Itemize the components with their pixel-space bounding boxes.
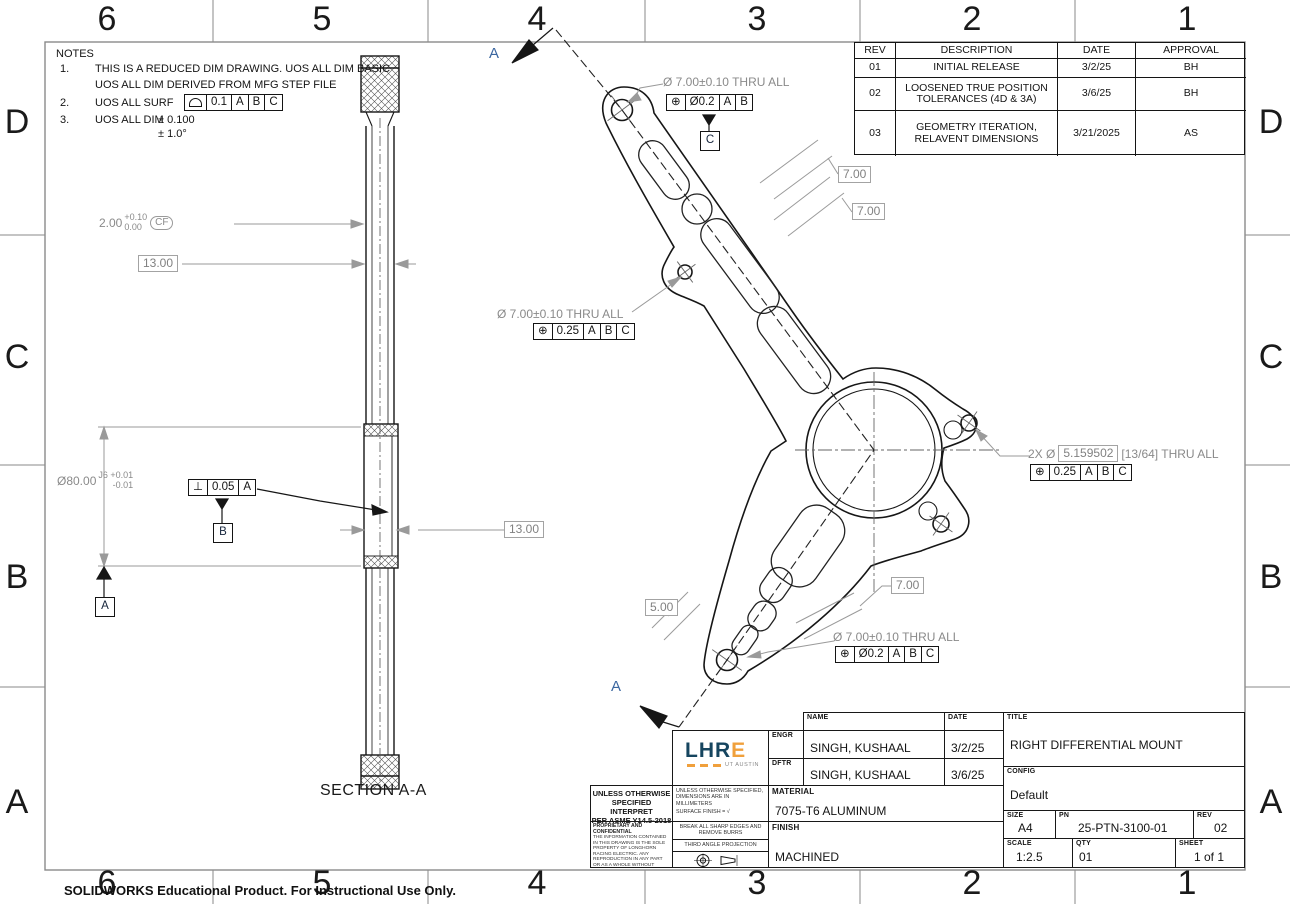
- surface-finish-icon: √: [727, 809, 730, 815]
- datum-flag-c: C: [700, 131, 720, 151]
- callout-right-ears-text: 2X Ø 5.159502 [13/64] THRU ALL: [1028, 445, 1219, 462]
- tb-finish-cell: FINISH MACHINED: [768, 821, 1004, 868]
- callout-bottom-hole-fcf: ⊕ Ø0.2 A B C: [835, 646, 939, 663]
- rev-row-3-rev: 03: [855, 111, 896, 156]
- tb-dftr-date: 3/6/25: [944, 758, 1004, 786]
- tb-config-cell: CONFIG Default: [1003, 766, 1245, 811]
- tb-rev-cell: REV 02: [1193, 810, 1245, 839]
- rev-row-2-rev: 02: [855, 78, 896, 111]
- section-view-drawing: [361, 56, 399, 794]
- logo-dashes: [687, 764, 721, 767]
- position-icon: ⊕: [534, 324, 553, 339]
- zone-left-b: B: [2, 558, 32, 596]
- rev-row-1-rev: 01: [855, 59, 896, 78]
- third-angle-projection-icon: [691, 853, 751, 868]
- zone-top-1: 1: [1165, 0, 1209, 38]
- callout-top-hole-text: Ø 7.00±0.10 THRU ALL: [663, 75, 789, 89]
- callout-top-hole-fcf: ⊕ Ø0.2 A B: [666, 94, 753, 111]
- zone-right-c: C: [1256, 338, 1286, 376]
- position-icon: ⊕: [836, 647, 855, 662]
- callout-right-ears-fcf: ⊕ 0.25 A B C: [1030, 464, 1132, 481]
- zone-top-6: 6: [85, 0, 129, 38]
- rev-row-1-description: INITIAL RELEASE: [896, 59, 1058, 78]
- dim-width-top: 13.00: [138, 255, 178, 272]
- tb-dftr-label: DFTR: [768, 758, 804, 786]
- callout-bottom-hole-text: Ø 7.00±0.10 THRU ALL: [833, 630, 959, 644]
- note-1-line-2: UOS ALL DIM DERIVED FROM MFG STEP FILE: [95, 79, 336, 91]
- tb-sheet-cell: SHEET 1 of 1: [1175, 838, 1245, 868]
- dim-depth: 2.00 +0.10 0.00 CF: [99, 213, 173, 232]
- zone-top-3: 3: [735, 0, 779, 38]
- tb-scale-cell: SCALE 1:2.5: [1003, 838, 1073, 868]
- zone-top-4: 4: [515, 0, 559, 38]
- rev-row-3-date: 3/21/2025: [1058, 111, 1136, 156]
- rev-header-description: DESCRIPTION: [896, 43, 1058, 59]
- continuous-feature-flag: CF: [150, 216, 173, 230]
- cut-label-top: A: [489, 45, 499, 62]
- zone-left-c: C: [2, 338, 32, 376]
- tb-engr-name: SINGH, KUSHAAL: [803, 730, 945, 759]
- note-2-fcf: 0.1 A B C: [184, 94, 283, 111]
- zone-bottom-2: 2: [950, 864, 994, 902]
- rev-row-3-description: GEOMETRY ITERATION, RELAVENT DIMENSIONS: [896, 111, 1058, 156]
- rev-header-date: DATE: [1058, 43, 1136, 59]
- tb-interpret-cell: UNLESS OTHERWISE SPECIFIED INTERPRET PER…: [590, 785, 673, 822]
- tb-title-cell: TITLE RIGHT DIFFERENTIAL MOUNT: [1003, 712, 1245, 767]
- tb-projection-symbol-cell: [672, 851, 769, 868]
- note-3-num: 3.: [60, 114, 69, 126]
- dim-wall-2: 7.00: [852, 203, 885, 220]
- position-icon: ⊕: [1031, 465, 1050, 480]
- dim-bore-value: Ø80.00: [57, 474, 96, 488]
- perpendicularity-icon: ⊥: [189, 480, 208, 495]
- rev-row-2-date: 3/6/25: [1058, 78, 1136, 111]
- datum-flag-a: A: [95, 597, 115, 617]
- logo-subtext: UT AUSTIN: [725, 762, 759, 768]
- tb-material-cell: MATERIAL 7075-T6 ALUMINUM: [768, 785, 1004, 822]
- tb-logo-cell: LHRE UT AUSTIN: [672, 730, 769, 786]
- dim-wall-1: 7.00: [838, 166, 871, 183]
- dim-width-mid: 13.00: [504, 521, 544, 538]
- tb-uos-dims-cell: UNLESS OTHERWISE SPECIFIED, DIMENSIONS A…: [672, 785, 769, 822]
- tb-pn-cell: PN 25-PTN-3100-01: [1055, 810, 1194, 839]
- position-icon: ⊕: [667, 95, 686, 110]
- zone-left-d: D: [2, 103, 32, 141]
- rev-row-2-approval: BH: [1136, 78, 1246, 111]
- main-dim-lines: [628, 84, 1030, 658]
- dim-bore-fit: J6 +0.01 -0.01: [98, 471, 133, 490]
- part-outline: [603, 87, 977, 684]
- section-view-label: SECTION A-A: [320, 782, 427, 800]
- solidworks-watermark: SOLIDWORKS Educational Product. For Inst…: [64, 883, 456, 898]
- note-2-text: UOS ALL SURF: [95, 97, 173, 109]
- zone-top-5: 5: [300, 0, 344, 38]
- datum-leaders: [97, 115, 715, 597]
- dim-wall-4: 5.00: [645, 599, 678, 616]
- rev-header-approval: APPROVAL: [1136, 43, 1246, 59]
- tb-proprietary-cell: PROPRIETARY AND CONFIDENTIAL THE INFORMA…: [590, 821, 673, 868]
- rev-row-1-approval: BH: [1136, 59, 1246, 78]
- tb-engr-label: ENGR: [768, 730, 804, 759]
- note-3-tol-1: ± 0.100: [158, 114, 195, 126]
- company-logo: LHRE: [685, 739, 746, 763]
- note-2-num: 2.: [60, 97, 69, 109]
- rev-header-rev: REV: [855, 43, 896, 59]
- dim-wall-3: 7.00: [891, 577, 924, 594]
- tb-break-edges-cell: BREAK ALL SHARP EDGES AND REMOVE BURRS: [672, 821, 769, 840]
- zone-bottom-4: 4: [515, 864, 559, 902]
- surface-profile-icon: [185, 95, 207, 110]
- note-1-line-1: THIS IS A REDUCED DIM DRAWING. UOS ALL D…: [95, 63, 390, 75]
- tb-qty-cell: QTY 01: [1072, 838, 1176, 868]
- rev-row-2-description: LOOSENED TRUE POSITION TOLERANCES (4D & …: [896, 78, 1058, 111]
- datum-flag-b: B: [213, 523, 233, 543]
- tb-date-header: DATE: [944, 712, 1004, 731]
- tb-engr-date: 3/2/25: [944, 730, 1004, 759]
- revision-table: REV DESCRIPTION DATE APPROVAL 01 INITIAL…: [854, 42, 1245, 155]
- dim-depth-value: 2.00: [99, 216, 122, 230]
- zone-left-a: A: [2, 783, 32, 821]
- cut-label-bottom: A: [611, 678, 621, 695]
- tb-dftr-name: SINGH, KUSHAAL: [803, 758, 945, 786]
- rev-row-1-date: 3/2/25: [1058, 59, 1136, 78]
- zone-right-a: A: [1256, 783, 1286, 821]
- note-3-tol-2: ± 1.0°: [158, 128, 187, 140]
- section-cut-arrows: [512, 28, 679, 728]
- callout-left-ear-text: Ø 7.00±0.10 THRU ALL: [497, 307, 623, 321]
- rev-row-3-approval: AS: [1136, 111, 1246, 156]
- notes-title: NOTES: [56, 48, 94, 60]
- drawing-sheet: 6 5 4 3 2 1 6 5 4 3 2 1 D C B A D C B A …: [0, 0, 1290, 904]
- dim-bore: Ø80.00 J6 +0.01 -0.01: [57, 471, 133, 490]
- zone-top-2: 2: [950, 0, 994, 38]
- basic-dim-box: 5.159502: [1058, 445, 1118, 462]
- zone-bottom-3: 3: [735, 864, 779, 902]
- tb-size-cell: SIZE A4: [1003, 810, 1056, 839]
- tb-name-header: NAME: [803, 712, 945, 731]
- zone-right-d: D: [1256, 103, 1286, 141]
- note-1-num: 1.: [60, 63, 69, 75]
- dim-depth-tolerance: +0.10 0.00: [124, 213, 147, 232]
- part-pockets: [633, 135, 852, 658]
- callout-left-ear-fcf: ⊕ 0.25 A B C: [533, 323, 635, 340]
- zone-right-b: B: [1256, 558, 1286, 596]
- note-3-text: UOS ALL DIM: [95, 114, 164, 126]
- zone-bottom-1: 1: [1165, 864, 1209, 902]
- fcf-perpendicularity: ⊥ 0.05 A: [188, 479, 256, 496]
